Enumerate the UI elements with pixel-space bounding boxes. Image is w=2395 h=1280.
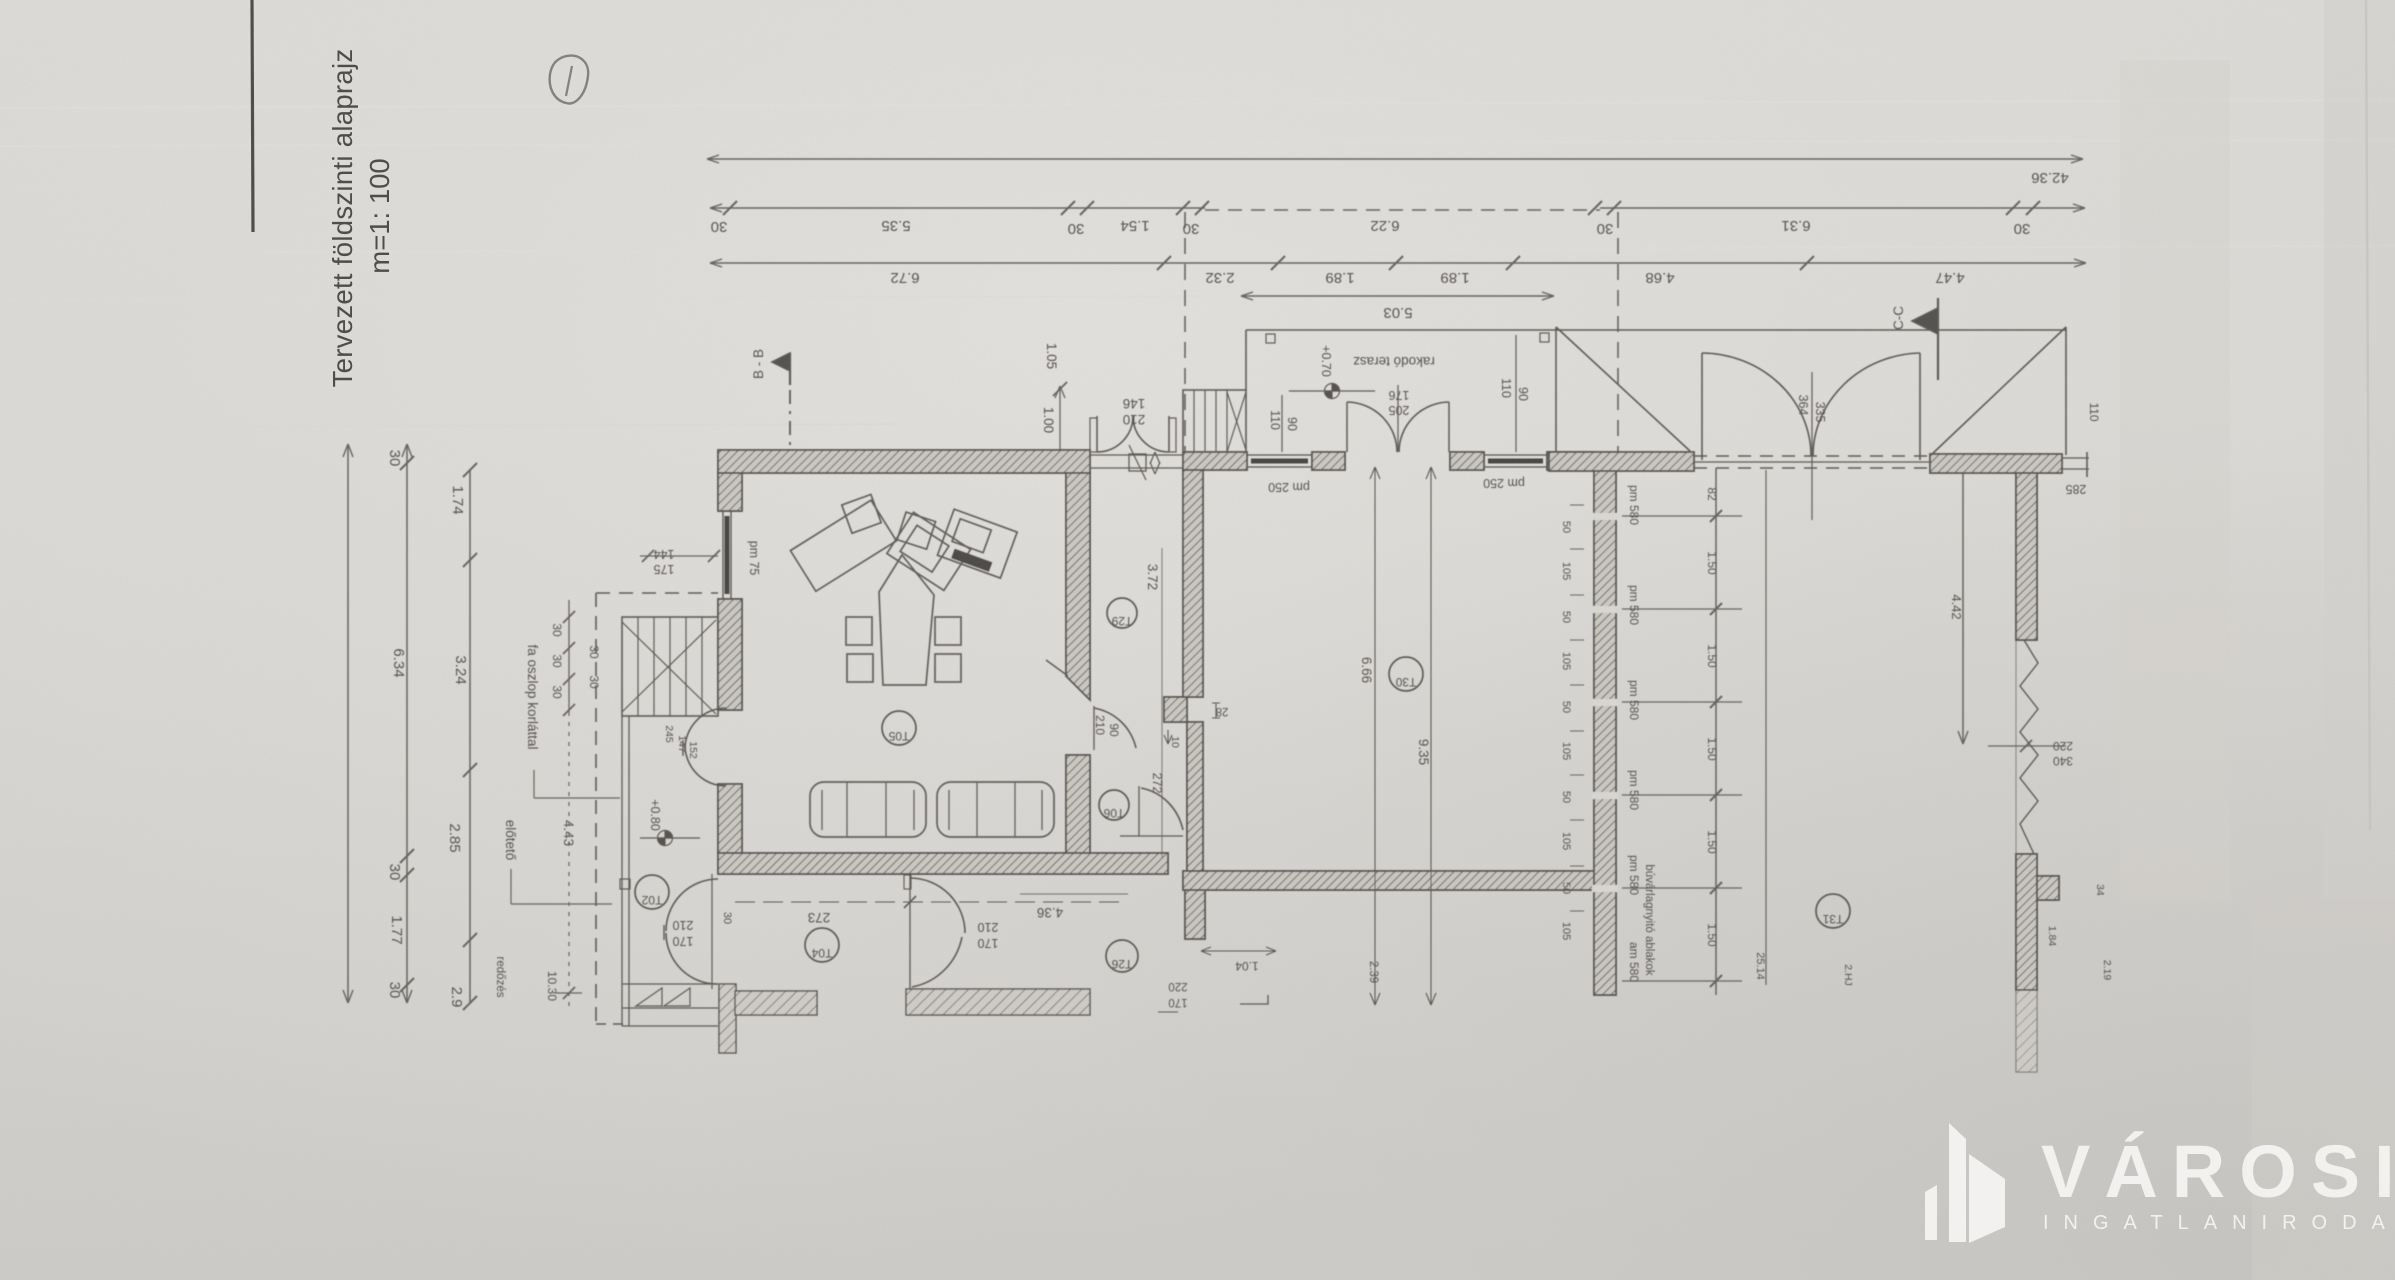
svg-text:INGATLANIRODA: INGATLANIRODA [2043,1212,2395,1234]
svg-text:VÁROSI: VÁROSI [2041,1130,2395,1213]
